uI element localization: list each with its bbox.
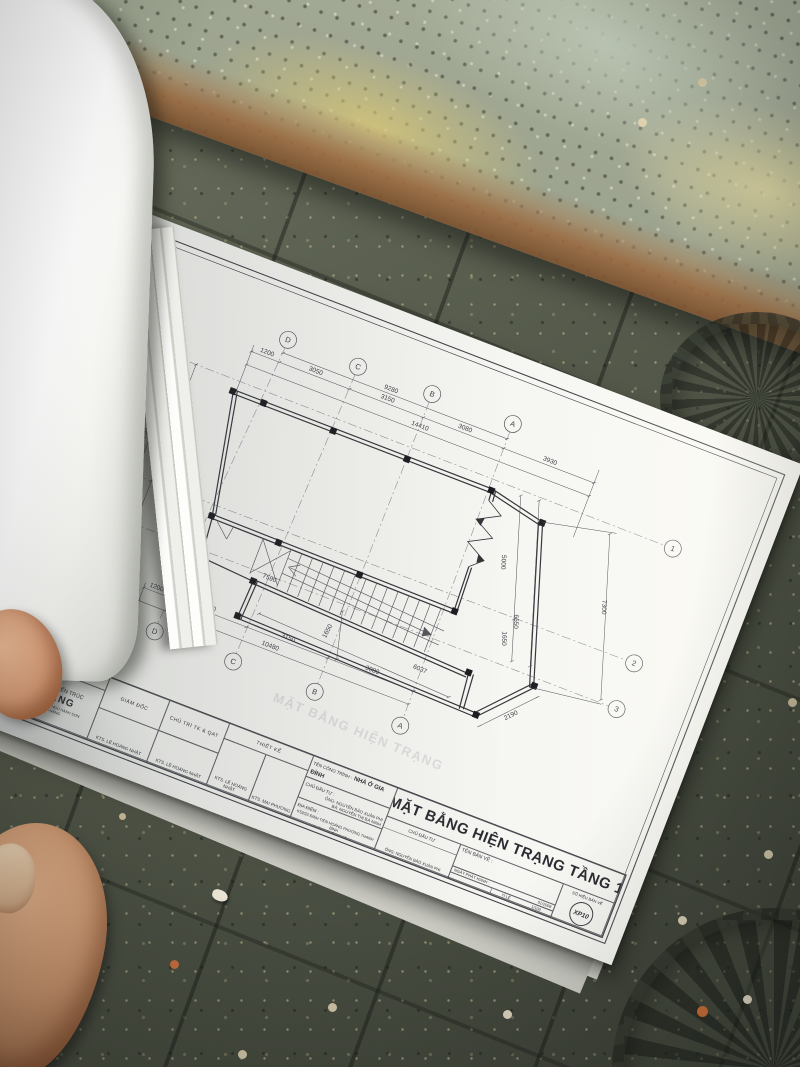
grid-bubble-label: B bbox=[428, 389, 436, 399]
photo-scene: 9280 1200 3050 3150 3080 3930 14410 5000… bbox=[0, 0, 800, 1067]
grid-bubble-label: A bbox=[396, 721, 404, 731]
dim-label: 1200 bbox=[259, 347, 275, 359]
dim-label: 7300 bbox=[600, 600, 608, 615]
grid-bubble-label: D bbox=[284, 335, 293, 346]
scale-value: 1/100 bbox=[531, 904, 542, 912]
grid-bubble-label: B bbox=[311, 687, 319, 697]
dim-label: 7590 bbox=[261, 572, 277, 584]
debris-chunk bbox=[211, 888, 230, 903]
drain-cover-bottom bbox=[612, 908, 800, 1067]
dim-label: 3150 bbox=[280, 632, 296, 644]
break-line-zigzag bbox=[459, 499, 504, 571]
flipped-page-curl[interactable] bbox=[0, 0, 160, 683]
dim-label: 3930 bbox=[542, 455, 558, 467]
thumb bbox=[0, 808, 128, 1067]
grid-bubble-label: 1 bbox=[669, 544, 676, 554]
dim-label: 1650 bbox=[500, 631, 508, 646]
scale-label: TỈ LỆ bbox=[501, 893, 512, 901]
grid-bubble-label: 3 bbox=[613, 704, 620, 714]
grid-bubble-label: D bbox=[151, 626, 160, 637]
dim-label: 3050 bbox=[308, 365, 324, 377]
dim-label: 6650 bbox=[512, 614, 520, 629]
dim-label: 6037 bbox=[412, 663, 428, 675]
dim-label: 2190 bbox=[503, 709, 519, 722]
walls bbox=[155, 390, 595, 733]
grid-bubble-label: C bbox=[354, 362, 363, 373]
dim-label: 5000 bbox=[499, 555, 507, 570]
dim-label: 3080 bbox=[457, 423, 473, 435]
grid-bubble-label: 2 bbox=[631, 658, 638, 668]
dim-label: 3150 bbox=[380, 393, 396, 405]
grid-bubble-label: C bbox=[229, 656, 238, 667]
dim-label: 1650 bbox=[321, 623, 334, 639]
grid-bubble-label: A bbox=[509, 419, 517, 429]
columns bbox=[152, 387, 599, 735]
thumbnail bbox=[0, 840, 40, 917]
